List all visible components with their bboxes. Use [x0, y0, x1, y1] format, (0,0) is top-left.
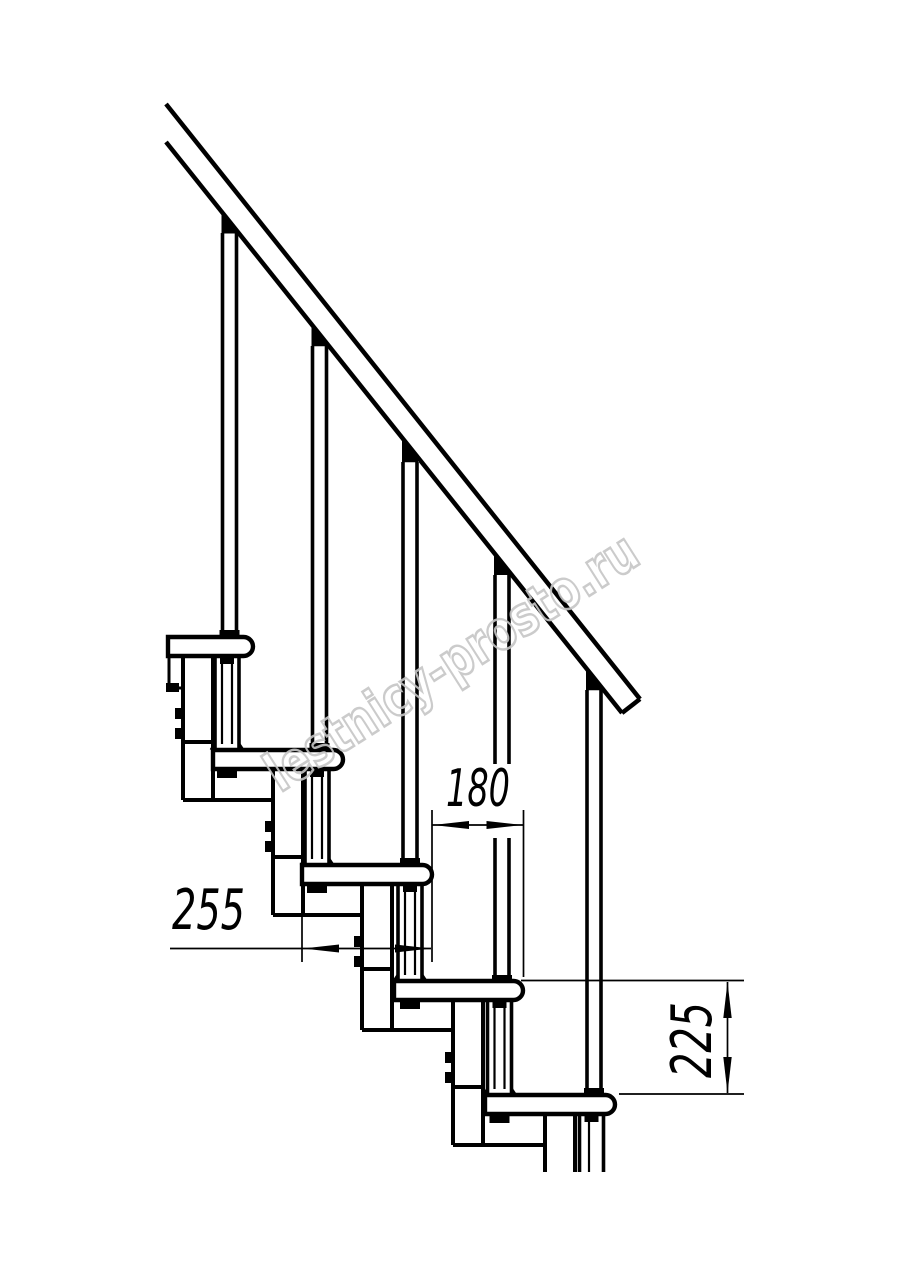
tread-4	[394, 981, 523, 1000]
baluster-2	[310, 324, 330, 750]
arrow-left-icon	[433, 821, 469, 829]
arrow-right-icon	[395, 945, 431, 953]
staircase-drawing: 255 180 225 lestnicy-prosto.ru	[0, 0, 914, 1280]
baluster-1	[220, 212, 240, 638]
baluster-4-top-cap	[494, 553, 510, 575]
baluster-5	[584, 668, 604, 1095]
dimension-255-label: 255	[172, 878, 245, 943]
support-column-1	[175, 656, 273, 800]
module-remnant	[166, 656, 183, 692]
baluster-4-base-nut	[492, 975, 512, 982]
tread-1	[168, 637, 253, 656]
baluster-5-base-nut	[584, 1088, 604, 1095]
support-column-5	[545, 1114, 575, 1172]
baluster-2-top-cap	[312, 324, 328, 346]
tread-3	[302, 865, 432, 884]
baluster-5-top-cap	[586, 668, 602, 690]
drawing-canvas: 255 180 225 lestnicy-prosto.ru	[0, 0, 914, 1280]
dimension-225-label: 225	[660, 1002, 725, 1078]
arrow-left-icon	[303, 945, 339, 953]
dimension-180-label: 180	[446, 759, 510, 819]
arrow-right-icon	[487, 821, 523, 829]
baluster-1-base-nut	[220, 630, 240, 637]
baluster-3-base-nut	[400, 858, 420, 865]
baluster-1-top-cap	[222, 212, 238, 234]
post-5	[580, 1114, 604, 1172]
tread-5	[485, 1095, 615, 1114]
dimension-225: 225	[521, 981, 744, 1095]
